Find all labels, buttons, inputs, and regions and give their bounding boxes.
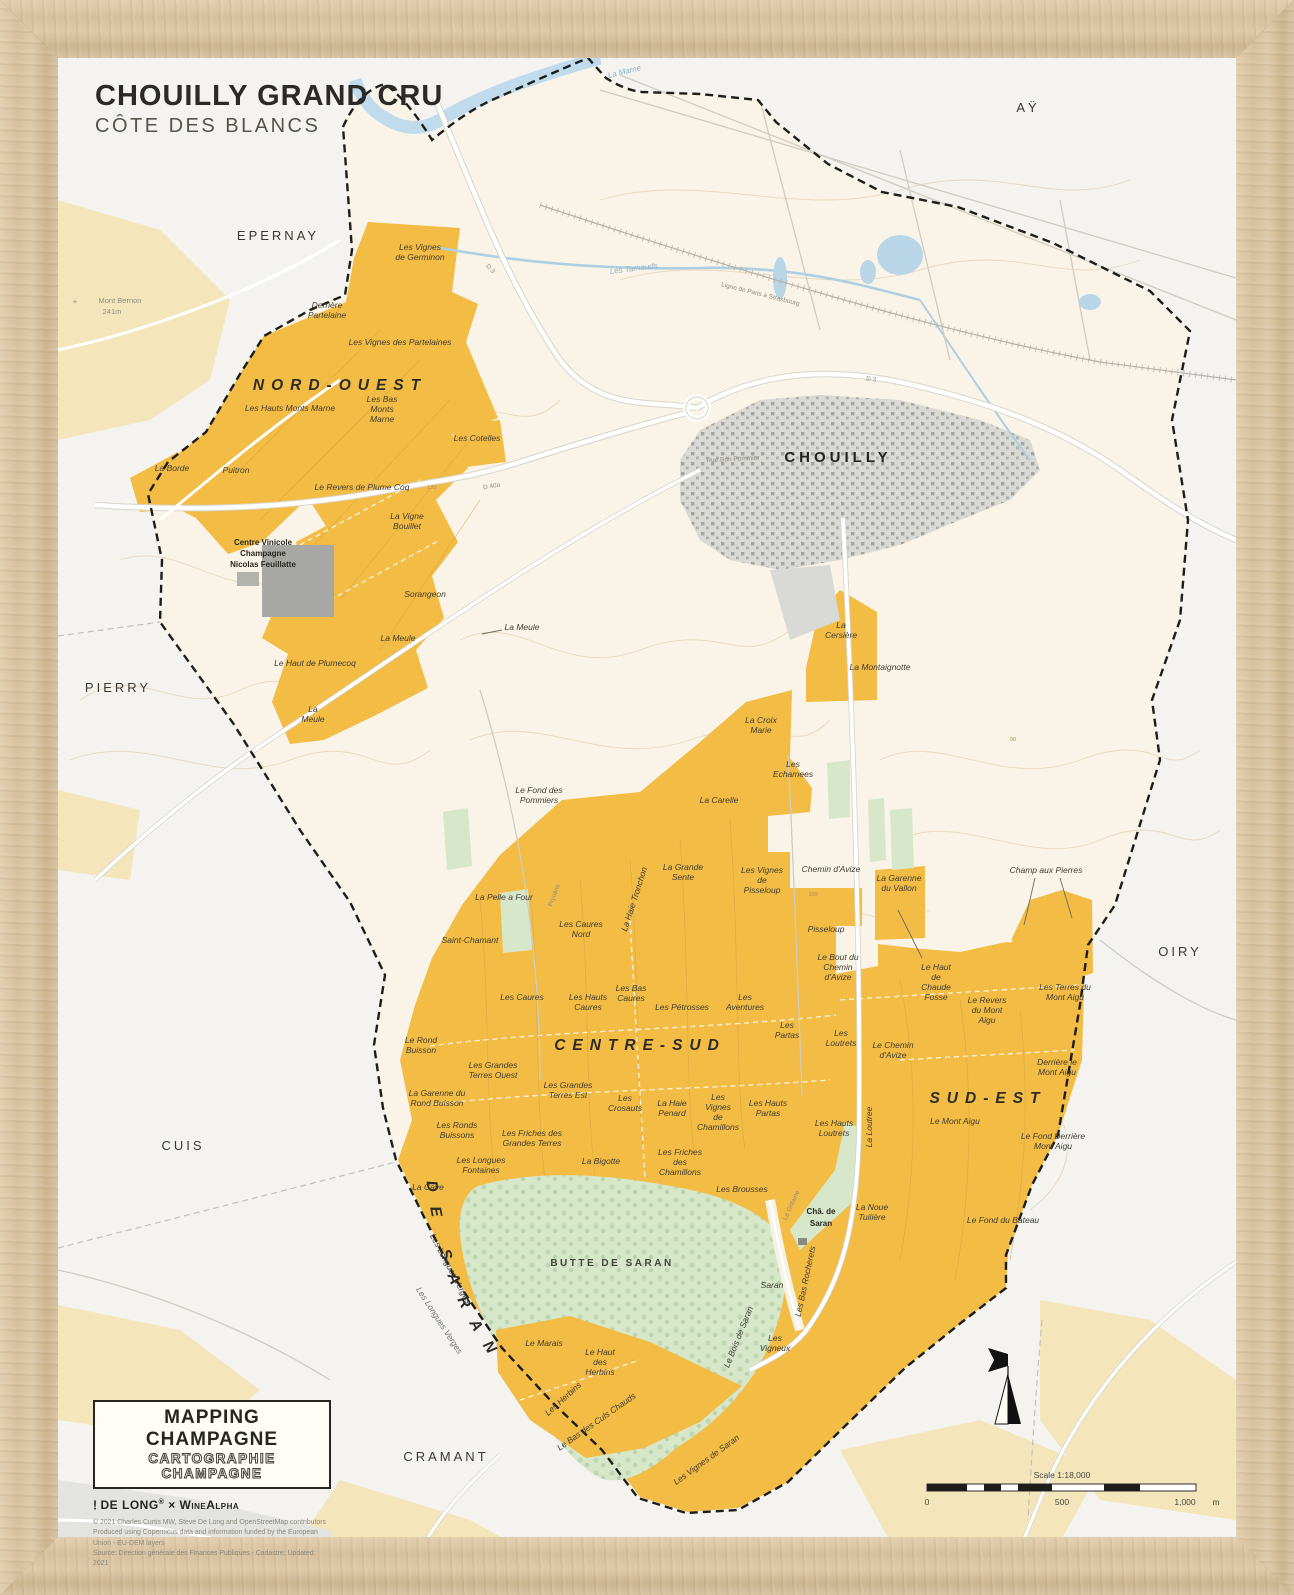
vineyard-label: Mont Aigu xyxy=(1034,1141,1072,1151)
scale-tick-500: 500 xyxy=(1055,1497,1069,1507)
vineyard-label: Echamees xyxy=(773,769,814,779)
region-label-sud-est: SUD-EST xyxy=(929,1090,1046,1107)
vineyard-label: Le Revers de Plume Coq xyxy=(315,482,410,492)
vineyard-label: Les xyxy=(786,759,800,769)
town-label-pierry: PIERRY xyxy=(85,680,151,695)
vineyard-label: Chemin xyxy=(823,962,853,972)
vineyard-label: Le Haut xyxy=(585,1347,615,1357)
scale-tick-0: 0 xyxy=(925,1497,930,1507)
vineyard-label: du Mont xyxy=(972,1005,1003,1015)
vineyard-label: Les Brousses xyxy=(716,1184,768,1194)
vineyard-label: Cersière xyxy=(825,630,857,640)
vineyard-label: d'Avize xyxy=(825,972,852,982)
vineyard-label: Terres Est xyxy=(549,1090,588,1100)
registered-mark: ® xyxy=(159,1499,165,1506)
frame-left xyxy=(0,0,58,1595)
vineyard-label: Les Vignes des Partelaines xyxy=(349,337,453,347)
vineyard-label: La Meule xyxy=(505,622,540,632)
vineyard-label: La Croix xyxy=(745,715,777,725)
vineyard-label: Buissons xyxy=(440,1130,475,1140)
vineyard-label: Le Fond du Bateau xyxy=(967,1215,1040,1225)
vineyard-label: Le Haut xyxy=(921,962,951,972)
vineyard-label: Mont Aigu xyxy=(1038,1067,1076,1077)
vineyard-label: La Montaignotte xyxy=(850,662,911,672)
svg-text:Nicolas Feuillatte: Nicolas Feuillatte xyxy=(230,560,296,569)
vineyard-label: de xyxy=(713,1112,723,1122)
vineyard-label: Les Vignes xyxy=(741,865,784,875)
vineyard-label: Mont Aigu xyxy=(1046,992,1084,1002)
map-canvas: Scale 1:18,000 0 500 1,000 m EPERNAY AŸ … xyxy=(58,58,1236,1537)
vineyard-label: Terres Ouest xyxy=(469,1070,518,1080)
town-label-epernay: EPERNAY xyxy=(237,228,319,243)
vineyard-label: Vigneux xyxy=(760,1343,791,1353)
vineyard-label: Les Grandes xyxy=(544,1080,593,1090)
town-label-ay: AŸ xyxy=(1016,100,1039,115)
vineyard-label: Derrière le xyxy=(1037,1057,1077,1067)
town-label-chouilly: CHOUILLY xyxy=(784,449,891,466)
vineyard-label: Derrière xyxy=(312,300,343,310)
series-title: MAPPING CHAMPAGNE xyxy=(103,1407,321,1451)
vineyard-label: Les xyxy=(768,1333,782,1343)
vineyard-label: Les Friches des xyxy=(502,1128,563,1138)
vineyard-label: Monts xyxy=(370,404,394,414)
vineyard-label: Le Fond Derrière xyxy=(1021,1131,1086,1141)
map-credits: © 2021 Charles Curtis MW, Steve De Long … xyxy=(93,1518,331,1570)
scale-label: Scale 1:18,000 xyxy=(1034,1470,1091,1480)
vineyard-label: Le Haut de Plumecoq xyxy=(274,658,356,668)
vineyard-label: Aventures xyxy=(725,1002,765,1012)
vineyard-label: du Vallon xyxy=(881,883,916,893)
vineyard-label: Bouillet xyxy=(393,521,422,531)
peak-marker: + xyxy=(73,297,78,306)
vineyard-label: Le Rond xyxy=(405,1035,437,1045)
vineyard-label: La Noue xyxy=(856,1202,888,1212)
brand-separator: × xyxy=(168,1498,176,1512)
vineyard-label: La Grande xyxy=(663,862,703,872)
vineyard-label: Les Bas xyxy=(616,983,647,993)
vineyard-label: Les xyxy=(711,1092,725,1102)
series-title-box: MAPPING CHAMPAGNE CARTOGRAPHIE CHAMPAGNE xyxy=(93,1400,331,1489)
svg-text:Châ. de: Châ. de xyxy=(807,1207,836,1216)
contour-label: 100 xyxy=(808,892,817,898)
vineyard-label: Chamillons xyxy=(659,1167,702,1177)
vineyard-label: La Haie xyxy=(657,1098,687,1108)
vineyard-label: La Pelle a Four xyxy=(475,892,534,902)
town-label-oiry: OIRY xyxy=(1158,944,1202,959)
vineyard-label: Les Hauts xyxy=(569,992,608,1002)
vineyard-label: Pisseloup xyxy=(808,924,845,934)
vineyard-label: Marie xyxy=(750,725,772,735)
vineyard-label: Les Pétrosses xyxy=(655,1002,710,1012)
vineyard-label: Aigu xyxy=(977,1015,995,1025)
vineyard-label: Partas xyxy=(775,1030,800,1040)
vineyard-label: Loutrets xyxy=(826,1038,857,1048)
vineyard-label: Le Fond des xyxy=(515,785,563,795)
vineyard-label: Saran xyxy=(761,1280,784,1290)
vineyard-label: Les xyxy=(780,1020,794,1030)
vineyard-label: Partas xyxy=(756,1108,781,1118)
vineyard-label: Rond Buisson xyxy=(411,1098,464,1108)
vineyard-label: Champ aux Pierres xyxy=(1010,865,1084,875)
vineyard-label: La Bigotte xyxy=(582,1156,621,1166)
map-artwork: Scale 1:18,000 0 500 1,000 m EPERNAY AŸ … xyxy=(58,58,1236,1537)
vineyard-label: Tuilière xyxy=(858,1212,886,1222)
page-subtitle: CÔTE DES BLANCS xyxy=(95,115,443,138)
frame-top xyxy=(0,0,1294,58)
contour-label: 120 xyxy=(427,485,436,491)
vineyard-label: Pommiers xyxy=(520,795,559,805)
vineyard-label: Les Hauts Monts Marne xyxy=(245,403,336,413)
vineyard-label: La Meule xyxy=(381,633,416,643)
brand-winealpha: WineAlpha xyxy=(180,1498,240,1512)
map-title-block: CHOUILLY GRAND CRU CÔTE DES BLANCS xyxy=(95,80,443,138)
vineyard-label: Grandes Terres xyxy=(503,1138,562,1148)
vineyard-label: de xyxy=(931,972,941,982)
credit-line: Source: Direction générale des Finances … xyxy=(93,1549,331,1570)
vineyard-label: Les Ronds xyxy=(437,1120,478,1130)
vineyard-label: Les Grandes xyxy=(469,1060,518,1070)
vineyard-label: Les Cotelles xyxy=(454,433,502,443)
vineyard-label: La Vigne xyxy=(390,511,424,521)
vineyard-label: La xyxy=(308,704,318,714)
vineyard-label: Buisson xyxy=(406,1045,437,1055)
vineyard-label: Les Terres du xyxy=(1039,982,1091,992)
vineyard-label: Chaude xyxy=(921,982,951,992)
vineyard-label: Sente xyxy=(672,872,694,882)
vineyard-label: Marne xyxy=(370,414,394,424)
scale-tick-1000: 1,000 xyxy=(1174,1497,1196,1507)
vineyard-label: Les Vignes xyxy=(399,242,442,252)
road-label-loutree: La Loutree xyxy=(864,1106,874,1147)
svg-text:Champagne: Champagne xyxy=(240,549,286,558)
chateau-saran-building xyxy=(798,1238,807,1245)
peak-name: Mont Bernon xyxy=(99,296,142,305)
vineyard-label: Vignes xyxy=(705,1102,732,1112)
vineyard-label: Les xyxy=(618,1093,632,1103)
contour-label: 90 xyxy=(1010,737,1016,743)
vineyard-label: Loutrets xyxy=(819,1128,850,1138)
vineyard-label: Nord xyxy=(572,929,591,939)
vineyard-label: Chamillons xyxy=(697,1122,740,1132)
framed-map-poster: Scale 1:18,000 0 500 1,000 m EPERNAY AŸ … xyxy=(0,0,1294,1595)
credit-line: © 2021 Charles Curtis MW, Steve De Long … xyxy=(93,1518,331,1528)
vineyard-label: Caures xyxy=(617,993,645,1003)
vineyard-label: Herbins xyxy=(585,1367,615,1377)
vineyard-label: Le Bout du xyxy=(817,952,858,962)
vineyard-label: La Cave xyxy=(412,1182,444,1192)
vineyard-label: de Germinon xyxy=(395,252,444,262)
vineyard-label: Le Mont Aigu xyxy=(930,1116,980,1126)
vineyard-label: Le Chemin xyxy=(872,1040,913,1050)
vineyard-label: Le Marais xyxy=(525,1338,563,1348)
vineyard-label: d'Avize xyxy=(880,1050,907,1060)
vineyard-label: Caures xyxy=(574,1002,602,1012)
vineyard-label: Pisseloup xyxy=(744,885,781,895)
vineyard-label: Les xyxy=(834,1028,848,1038)
vineyard-label: de xyxy=(757,875,767,885)
vineyard-label: Crosauts xyxy=(608,1103,643,1113)
vineyard-label: Partelaine xyxy=(308,310,347,320)
vineyard-label: Meule xyxy=(301,714,324,724)
vineyard-label: Les Bas xyxy=(367,394,398,404)
svg-text:Centre Vinicole: Centre Vinicole xyxy=(234,538,293,547)
vineyard-label: Les xyxy=(738,992,752,1002)
vineyard-label: La xyxy=(836,620,846,630)
region-label-nord-ouest: NORD-OUEST xyxy=(253,377,427,394)
vineyard-label: des xyxy=(593,1357,607,1367)
vineyard-label: Saint-Chamant xyxy=(442,935,499,945)
vineyard-label: La Garenne du xyxy=(409,1088,466,1098)
vineyard-label: La Borde xyxy=(155,463,190,473)
legend-block: MAPPING CHAMPAGNE CARTOGRAPHIE CHAMPAGNE… xyxy=(93,1400,331,1570)
town-label-cuis: CUIS xyxy=(161,1138,204,1153)
vineyard-label: Chemin d'Avize xyxy=(802,864,861,874)
credit-line: Produced using Copernicus data and infor… xyxy=(93,1528,331,1549)
vineyard-label: Fontaines xyxy=(462,1165,500,1175)
forest-label-butte-de-saran: BUTTE DE SARAN xyxy=(550,1258,673,1269)
vineyard-label: des xyxy=(673,1157,687,1167)
town-label-cramant: CRAMANT xyxy=(403,1449,488,1464)
svg-text:Saran: Saran xyxy=(810,1219,832,1228)
scale-unit: m xyxy=(1212,1497,1219,1507)
vineyard-label: Penard xyxy=(658,1108,686,1118)
vineyard-label: Les Hauts xyxy=(815,1118,854,1128)
vineyard-label: La Carelle xyxy=(700,795,739,805)
vineyard-label: Puitron xyxy=(223,465,250,475)
page-title: CHOUILLY GRAND CRU xyxy=(95,80,443,113)
vineyard-label: La Garenne xyxy=(877,873,922,883)
vineyard-label: Les Friches xyxy=(658,1147,703,1157)
brand-delong: DE LONG xyxy=(101,1498,159,1512)
vineyard-label: Sorangeon xyxy=(404,589,446,599)
vineyard-label: Les Caures xyxy=(559,919,603,929)
road-label-d3-east: D 3 xyxy=(866,375,877,383)
region-label-centre-sud: CENTRE-SUD xyxy=(554,1037,726,1054)
vineyard-label: Les Hauts xyxy=(749,1098,788,1108)
vineyard-label: Les Caures xyxy=(500,992,544,1002)
frame-right xyxy=(1236,0,1294,1595)
delong-logo-icon: ! xyxy=(93,1497,98,1512)
vineyard-label: Fosse xyxy=(924,992,947,1002)
peak-elevation: 241m xyxy=(103,307,122,316)
vineyard-label: Le Revers xyxy=(968,995,1007,1005)
publisher-brand: !DE LONG® × WineAlpha xyxy=(93,1498,331,1512)
vineyard-label: Les Longues xyxy=(457,1155,506,1165)
series-subtitle: CARTOGRAPHIE CHAMPAGNE xyxy=(103,1451,321,1481)
